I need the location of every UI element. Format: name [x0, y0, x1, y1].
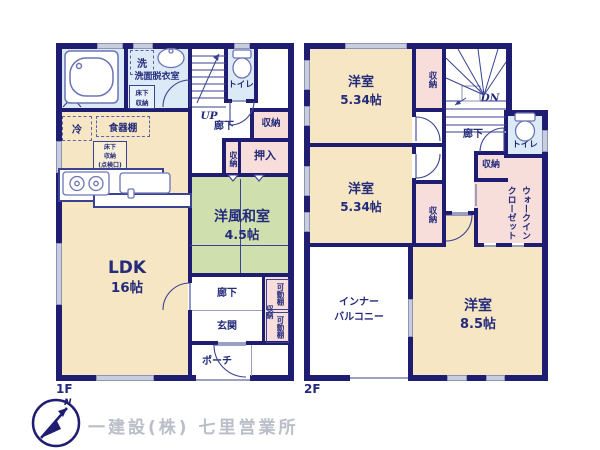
wall — [304, 243, 446, 247]
stairs-down-icon — [446, 49, 506, 125]
stair-sill — [192, 106, 226, 108]
balcony-window — [408, 299, 413, 337]
toilet-2f-label: トイレ — [508, 141, 542, 151]
wall — [188, 173, 288, 177]
wall — [250, 108, 254, 142]
wall — [442, 43, 446, 247]
stairs-up-icon — [192, 54, 226, 103]
balcony-label: インナー バルコニー — [327, 295, 391, 325]
tatami-line — [240, 179, 241, 273]
ub-label: UB — [78, 86, 114, 99]
door-sill — [218, 342, 246, 344]
fridge-label: 冷 — [72, 121, 82, 136]
yoshitsu1-name-label: 洋室 — [326, 76, 396, 91]
yoshitsu3-size-label: 8.5帖 — [442, 318, 514, 333]
wall — [408, 337, 413, 375]
balcony-edge — [350, 377, 408, 379]
wall — [224, 99, 232, 103]
window — [96, 375, 154, 381]
wall — [254, 49, 258, 103]
yoshitsu3-name-label: 洋室 — [442, 298, 514, 314]
floor-plan: 洗 床下 収納 冷 食器棚 床下 収納 (点検口) UB 洗面脱衣室 トイレ U… — [0, 0, 600, 450]
oshiire-label: 押入 — [244, 150, 286, 163]
hallway-upper-label: 廊下 — [204, 121, 244, 133]
yoshitsu2-size-label: 5.34帖 — [326, 201, 396, 215]
window — [133, 43, 153, 49]
yoshitsu2-name-label: 洋室 — [326, 183, 396, 198]
closet-small-label: 収納 — [225, 144, 238, 174]
floor-2-label: 2F — [304, 383, 330, 397]
wall — [246, 99, 258, 103]
wall — [250, 108, 288, 112]
wall — [412, 147, 416, 154]
wall — [188, 341, 218, 345]
yoshitsu1-size-label: 5.34帖 — [326, 94, 396, 108]
washitsu-name-label: 洋風和室 — [205, 209, 279, 225]
underfloor-hatch-label: 床下 収納 (点検口) — [98, 142, 122, 169]
door-arc-yoshitsu1 — [416, 117, 440, 141]
wall — [304, 143, 442, 147]
wall — [474, 178, 508, 182]
company-name: 一建設(株) 七里営業所 — [88, 413, 298, 438]
entrance-label: 玄関 — [206, 321, 248, 333]
cupboard-label: 食器棚 — [109, 120, 138, 134]
ldk-name-label: LDK — [98, 259, 156, 279]
window — [304, 166, 310, 196]
wall — [504, 154, 548, 158]
wall — [474, 151, 508, 155]
hall-divider-line — [192, 310, 262, 311]
window — [304, 106, 310, 126]
hallway-lower-label: 廊下 — [206, 288, 248, 300]
porch-label: ポーチ — [194, 356, 240, 368]
wall — [56, 43, 294, 49]
wic-label: ウォークイン クローゼット — [490, 185, 532, 241]
door-sill — [232, 100, 246, 102]
window — [97, 43, 123, 49]
window — [304, 60, 310, 90]
wall — [412, 43, 416, 117]
porch-edge — [196, 379, 250, 381]
closet2-label: 収納 — [476, 160, 506, 170]
wall — [56, 43, 62, 381]
compass-north-label: N — [64, 398, 72, 408]
wall — [408, 247, 413, 299]
wall — [238, 142, 241, 173]
shelf-lower-label: 可動棚 — [270, 314, 284, 341]
cupboard-box: 食器棚 — [96, 116, 150, 137]
wall — [188, 273, 288, 277]
door-sill — [452, 212, 468, 214]
room-yoshitsu-3-entry — [446, 215, 474, 247]
wall — [304, 375, 548, 381]
window — [447, 375, 467, 381]
window — [345, 43, 407, 49]
wall — [412, 108, 442, 112]
wall — [468, 211, 474, 215]
laundry-label: 洗 — [137, 55, 147, 70]
kitchen-counter-island — [93, 193, 192, 208]
underfloor-storage-label: 床下 収納 — [136, 87, 149, 107]
stairs-down-label: DN — [476, 92, 504, 104]
wall — [56, 375, 294, 381]
underfloor-storage-box: 床下 収納 — [129, 85, 155, 109]
window — [304, 212, 310, 232]
wall — [304, 43, 512, 49]
closet3-label: 収納 — [422, 195, 436, 233]
door-sill — [475, 184, 477, 206]
room-toilet-1f — [228, 49, 254, 101]
closet1-label: 収納 — [422, 60, 436, 98]
wall — [474, 208, 478, 247]
compass-icon: N — [33, 398, 79, 446]
underfloor-hatch-box: 床下 収納 (点検口) — [93, 141, 127, 169]
window — [486, 375, 505, 381]
door-sill — [512, 245, 524, 247]
floor-1-label: 1F — [56, 383, 82, 397]
window — [542, 130, 548, 152]
washroom-label: 洗面脱衣室 — [124, 72, 190, 82]
wall — [412, 180, 442, 184]
door-arc-yoshitsu2 — [416, 154, 440, 178]
fridge-box: 冷 — [62, 116, 92, 141]
tatami-line — [190, 245, 288, 246]
wall — [224, 49, 228, 103]
door-sill — [484, 245, 496, 247]
wall — [412, 178, 416, 243]
ldk-size-label: 16帖 — [98, 281, 156, 297]
wall — [506, 43, 512, 116]
wall — [222, 138, 288, 142]
window — [234, 43, 250, 49]
hall-closet-label: 収納 — [255, 119, 287, 130]
wall — [62, 108, 188, 112]
toilet-1f-label: トイレ — [224, 81, 258, 91]
window — [56, 243, 62, 305]
hallway-2f-label: 廊下 — [452, 129, 494, 141]
porch-edge — [251, 345, 252, 376]
washitsu-size-label: 4.5帖 — [215, 228, 269, 242]
